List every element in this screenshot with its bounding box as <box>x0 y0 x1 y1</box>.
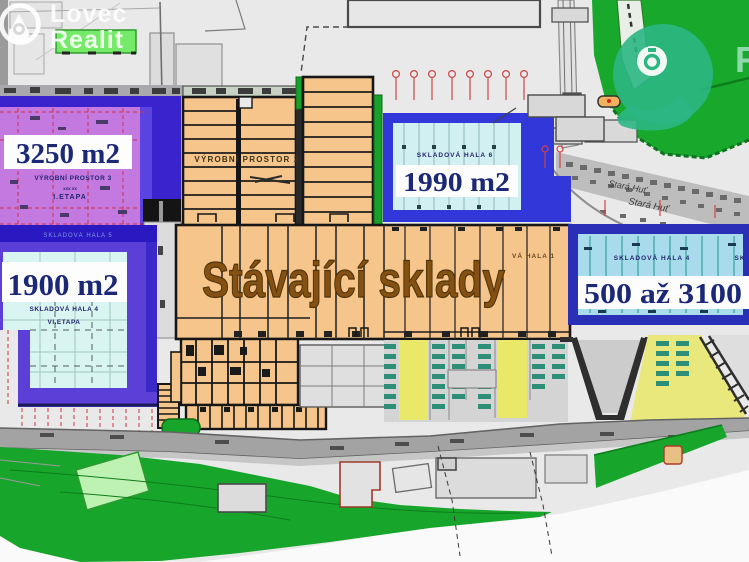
svg-text:Lovec: Lovec <box>50 0 127 28</box>
svg-text:1900 m2: 1900 m2 <box>7 267 118 302</box>
svg-text:I.ETAPA: I.ETAPA <box>53 194 87 201</box>
svg-text:SKLADOVÁ HALA 4: SKLADOVÁ HALA 4 <box>614 253 691 262</box>
svg-text:VÝROBNÍ PROSTOR 3: VÝROBNÍ PROSTOR 3 <box>34 173 111 182</box>
svg-text:Realit: Realit <box>50 26 124 54</box>
svg-text:xxx xx: xxx xx <box>63 186 77 191</box>
svg-text:R: R <box>735 39 749 80</box>
svg-text:500 až 3100: 500 až 3100 <box>584 278 742 310</box>
svg-text:SKLADOVÁ HALA 5: SKLADOVÁ HALA 5 <box>43 232 112 239</box>
svg-text:SKLADOVÁ HALA 4: SKLADOVÁ HALA 4 <box>29 304 98 313</box>
svg-text:1990 m2: 1990 m2 <box>403 167 510 197</box>
svg-text:SK: SK <box>734 255 745 262</box>
svg-text:SKLADOVÁ HALA 6: SKLADOVÁ HALA 6 <box>417 150 494 159</box>
svg-text:Stávající sklady: Stávající sklady <box>202 252 505 308</box>
svg-text:3250 m2: 3250 m2 <box>16 138 120 170</box>
svg-text:VI.ETAPA: VI.ETAPA <box>47 319 80 326</box>
svg-text:VÁ HALA 1: VÁ HALA 1 <box>512 251 555 260</box>
svg-text:VÝROBNÍ PROSTOR 2: VÝROBNÍ PROSTOR 2 <box>194 155 299 164</box>
